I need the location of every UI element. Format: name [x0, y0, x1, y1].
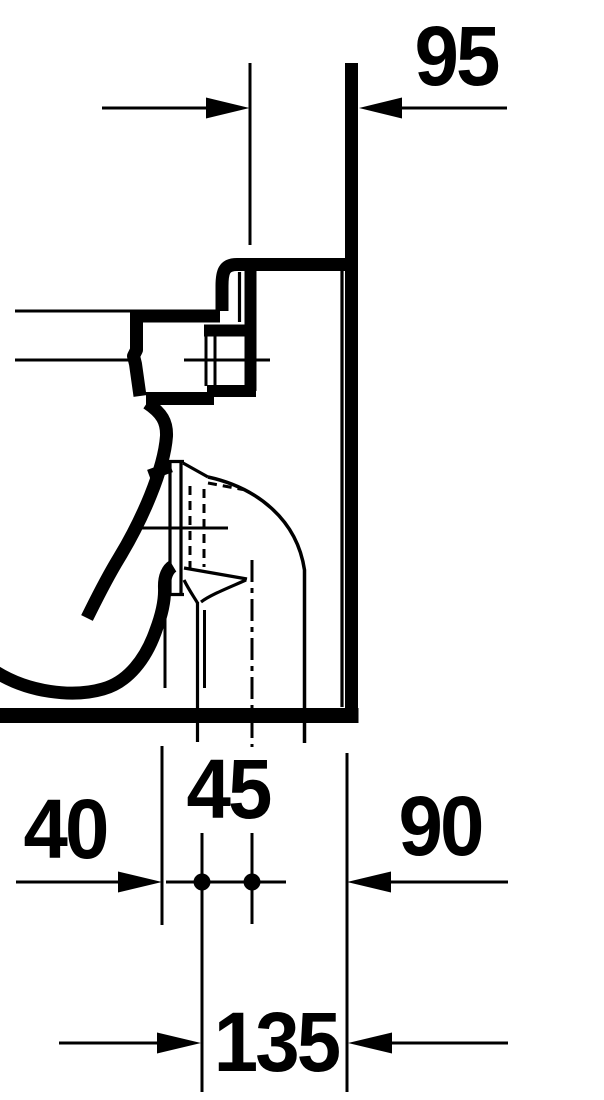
- technical-drawing: 95 40 45 90 135: [0, 0, 604, 1100]
- drain-position-dot: [194, 874, 211, 891]
- dimension-90: [347, 872, 508, 893]
- drain-position-dot: [244, 874, 261, 891]
- arrowhead-left: [347, 872, 391, 893]
- arrowhead-left: [348, 1033, 392, 1054]
- toilet-body-outline: [0, 265, 345, 694]
- dim-135-label: 135: [212, 1000, 340, 1084]
- arrowhead-right: [157, 1033, 201, 1054]
- arrowhead-right: [206, 98, 250, 119]
- dim-95-label: 95: [413, 14, 500, 98]
- arrowhead-left: [359, 98, 402, 119]
- dimension-45-dots: [166, 874, 286, 891]
- dim-90-label: 90: [397, 784, 484, 868]
- wall: [342, 63, 352, 722]
- arrowhead-right: [118, 872, 162, 893]
- dim-40-label: 40: [22, 787, 109, 871]
- outlet-elbow: [165, 477, 305, 743]
- drawing-canvas: [0, 0, 604, 1100]
- dim-45-label: 45: [185, 747, 272, 831]
- inlet-spud: [184, 331, 270, 392]
